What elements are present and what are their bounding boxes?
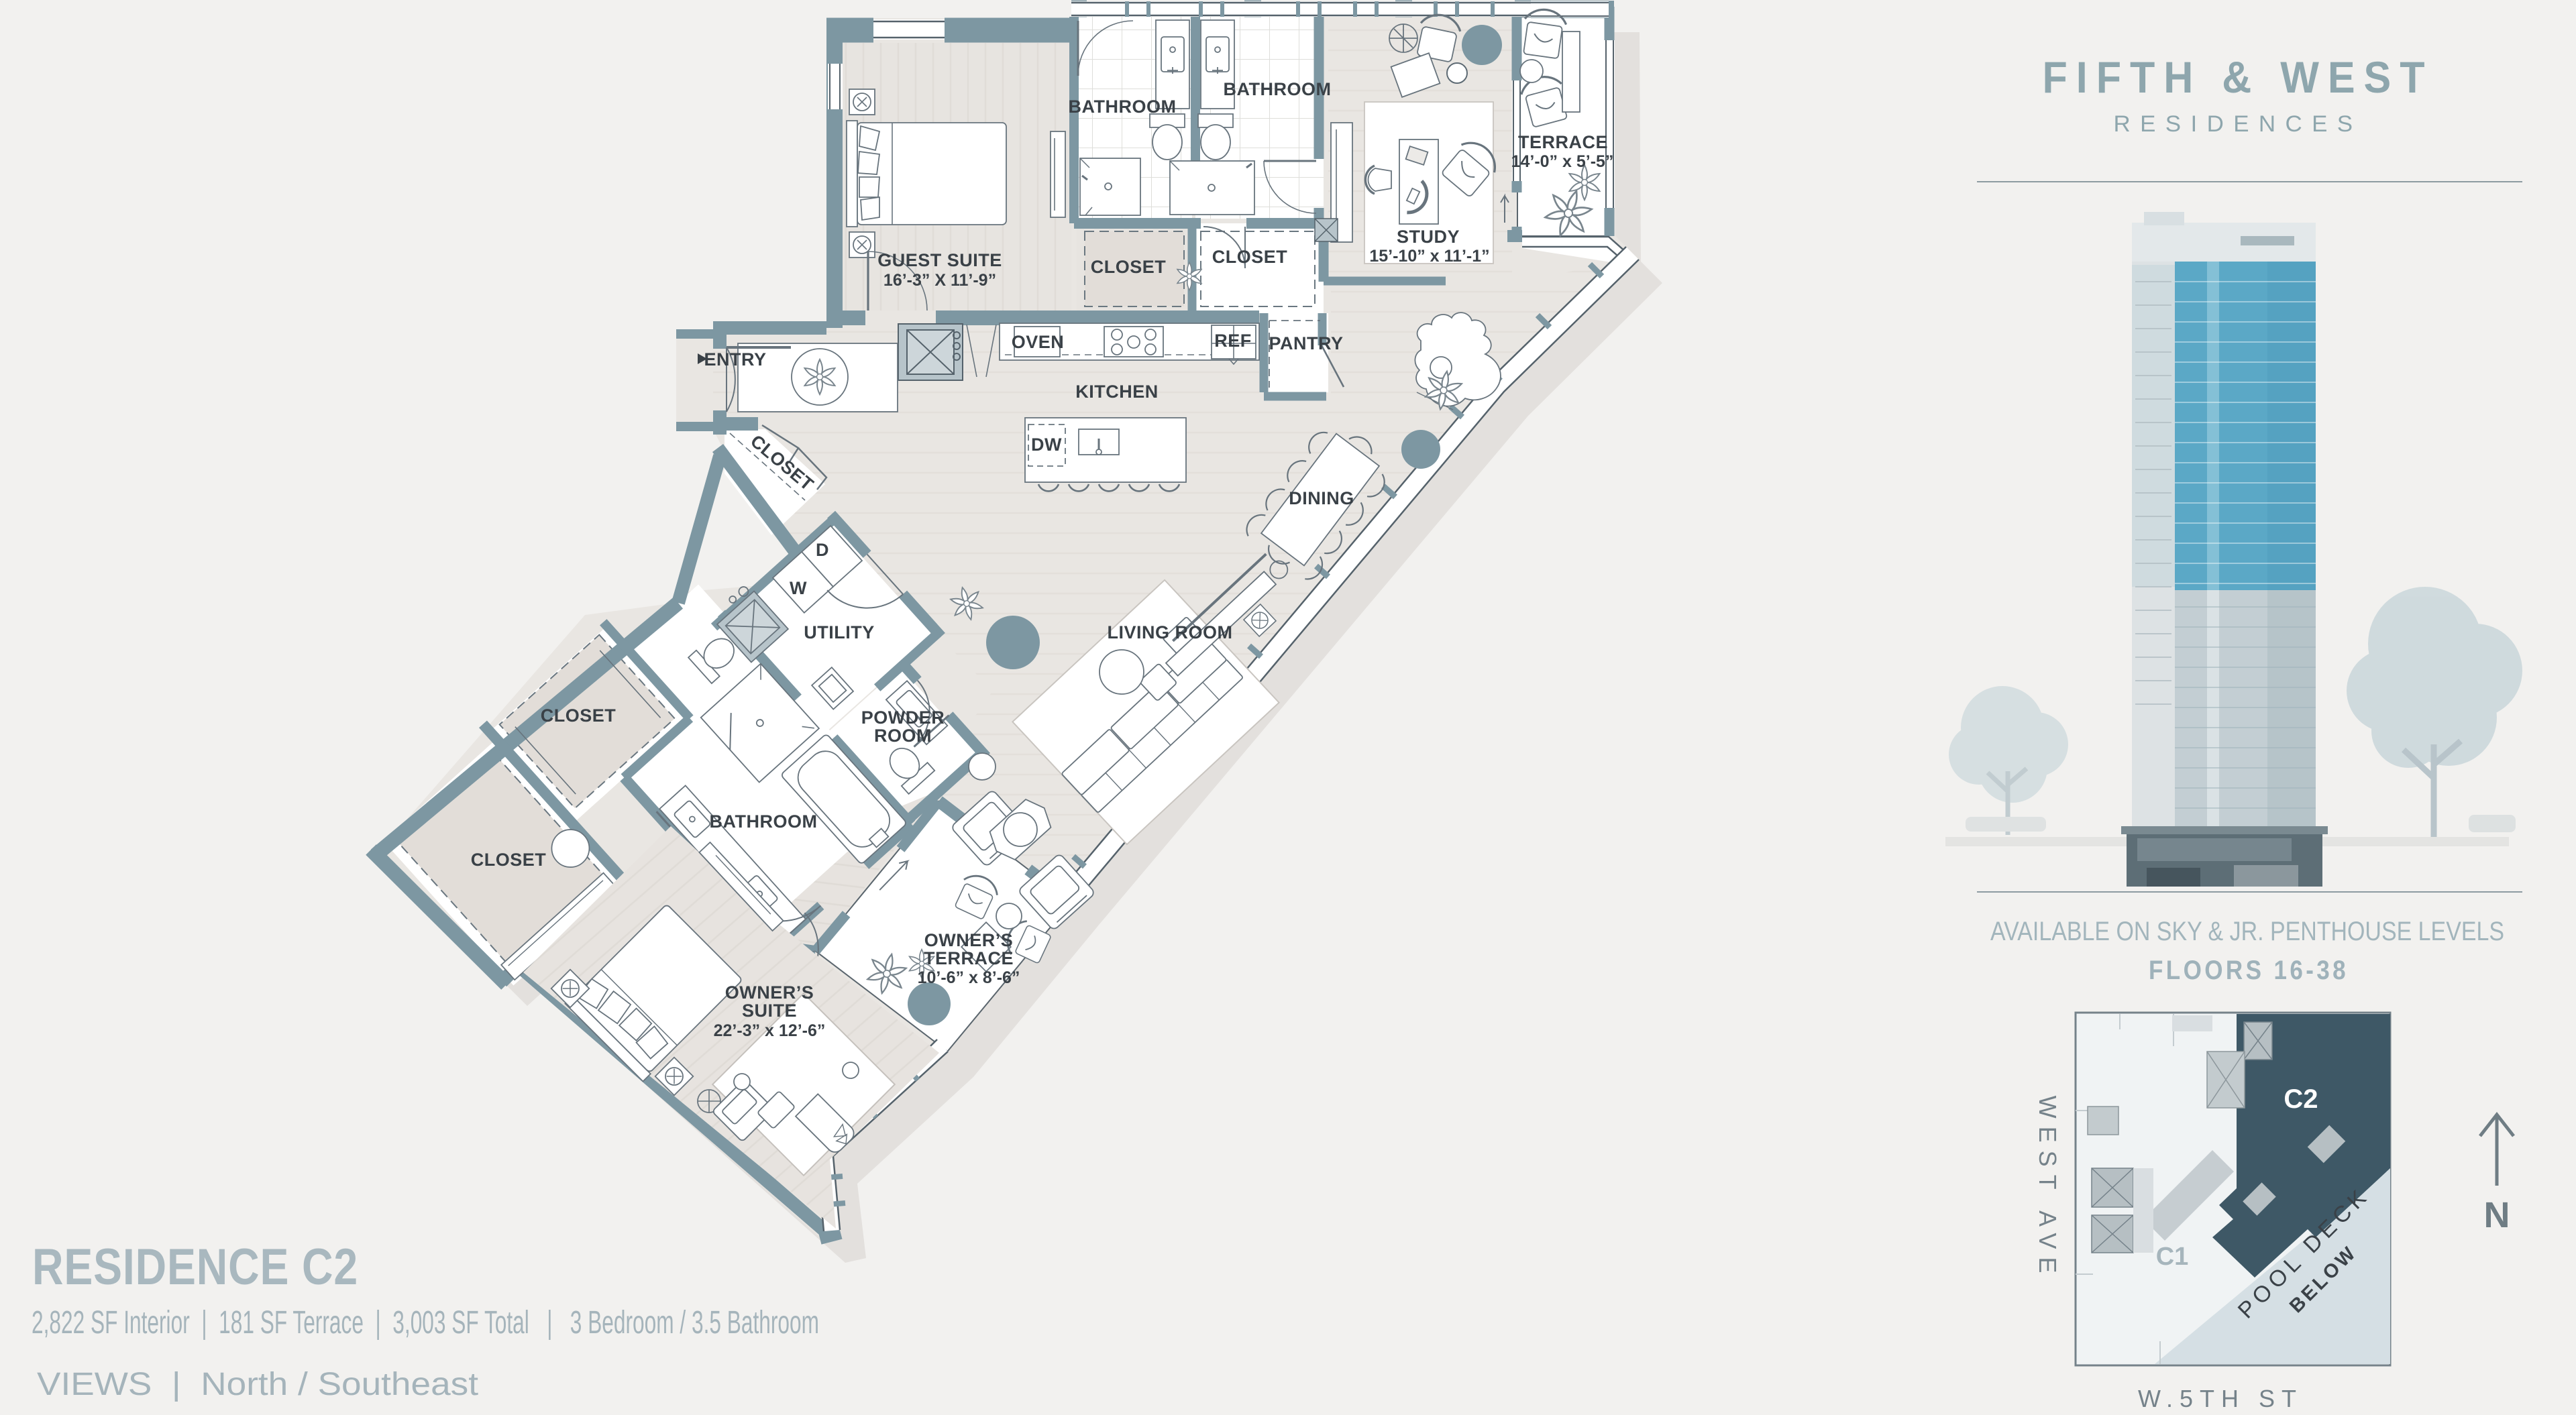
svg-text:WEST AVE: WEST AVE	[2034, 1096, 2061, 1282]
svg-text:LIVING ROOM: LIVING ROOM	[1108, 622, 1233, 642]
svg-text:10’-6” x 8’-6”: 10’-6” x 8’-6”	[918, 968, 1020, 987]
svg-text:GUEST SUITE: GUEST SUITE	[877, 250, 1002, 270]
svg-text:DW: DW	[1031, 435, 1062, 455]
svg-text:UTILITY: UTILITY	[804, 622, 875, 642]
svg-text:CLOSET: CLOSET	[1212, 247, 1288, 267]
svg-text:22’-3” x 12’-6”: 22’-3” x 12’-6”	[714, 1021, 826, 1040]
svg-text:KITCHEN: KITCHEN	[1075, 382, 1159, 402]
svg-text:C2: C2	[2284, 1084, 2318, 1114]
svg-text:FLOORS 16-38: FLOORS 16-38	[2149, 956, 2349, 985]
svg-text:ENTRY: ENTRY	[704, 349, 766, 370]
svg-text:CLOSET: CLOSET	[1091, 257, 1167, 277]
svg-text:CLOSET: CLOSET	[541, 705, 616, 726]
svg-text:OVEN: OVEN	[1012, 332, 1065, 352]
svg-text:POWDER: POWDER	[861, 707, 945, 728]
svg-text:RESIDENCES: RESIDENCES	[2114, 111, 2363, 137]
svg-text:AVAILABLE ON SKY & JR. PENTHOU: AVAILABLE ON SKY & JR. PENTHOUSE LEVELS	[1990, 917, 2504, 946]
svg-text:FIFTH & WEST: FIFTH & WEST	[2043, 52, 2434, 102]
svg-text:OWNER’S: OWNER’S	[725, 982, 814, 1003]
svg-text:W: W	[790, 578, 807, 598]
svg-text:BATHROOM: BATHROOM	[710, 811, 818, 832]
svg-text:C1: C1	[2156, 1243, 2189, 1271]
svg-text:VIEWS | North / Southeast: VIEWS | North / Southeast	[37, 1367, 478, 1402]
svg-text:DINING: DINING	[1289, 488, 1354, 508]
svg-text:RESIDENCE C2: RESIDENCE C2	[32, 1239, 358, 1296]
svg-text:15’-10” x 11’-1”: 15’-10” x 11’-1”	[1369, 247, 1489, 266]
svg-text:TERRACE: TERRACE	[1518, 132, 1608, 152]
svg-text:2,822 SF Interior | 181 SF T: 2,822 SF Interior | 181 SF Terrace | 3,0…	[32, 1305, 819, 1341]
svg-text:ROOM: ROOM	[874, 726, 932, 746]
svg-text:W.5TH ST: W.5TH ST	[2138, 1385, 2303, 1412]
svg-text:SUITE: SUITE	[742, 1001, 797, 1021]
svg-text:STUDY: STUDY	[1397, 227, 1460, 247]
svg-text:TERRACE: TERRACE	[924, 948, 1014, 968]
svg-text:CLOSET: CLOSET	[471, 850, 547, 870]
svg-text:D: D	[816, 540, 829, 560]
svg-text:N: N	[2484, 1195, 2510, 1235]
svg-text:14’-0” x 5’-5”: 14’-0” x 5’-5”	[1511, 152, 1614, 171]
svg-text:PANTRY: PANTRY	[1269, 333, 1344, 353]
svg-text:16’-3” X 11’-9”: 16’-3” X 11’-9”	[883, 271, 996, 290]
svg-text:BATHROOM: BATHROOM	[1224, 79, 1332, 99]
svg-text:OWNER’S: OWNER’S	[924, 930, 1014, 950]
svg-text:BATHROOM: BATHROOM	[1069, 97, 1177, 117]
svg-text:REF: REF	[1214, 331, 1252, 351]
